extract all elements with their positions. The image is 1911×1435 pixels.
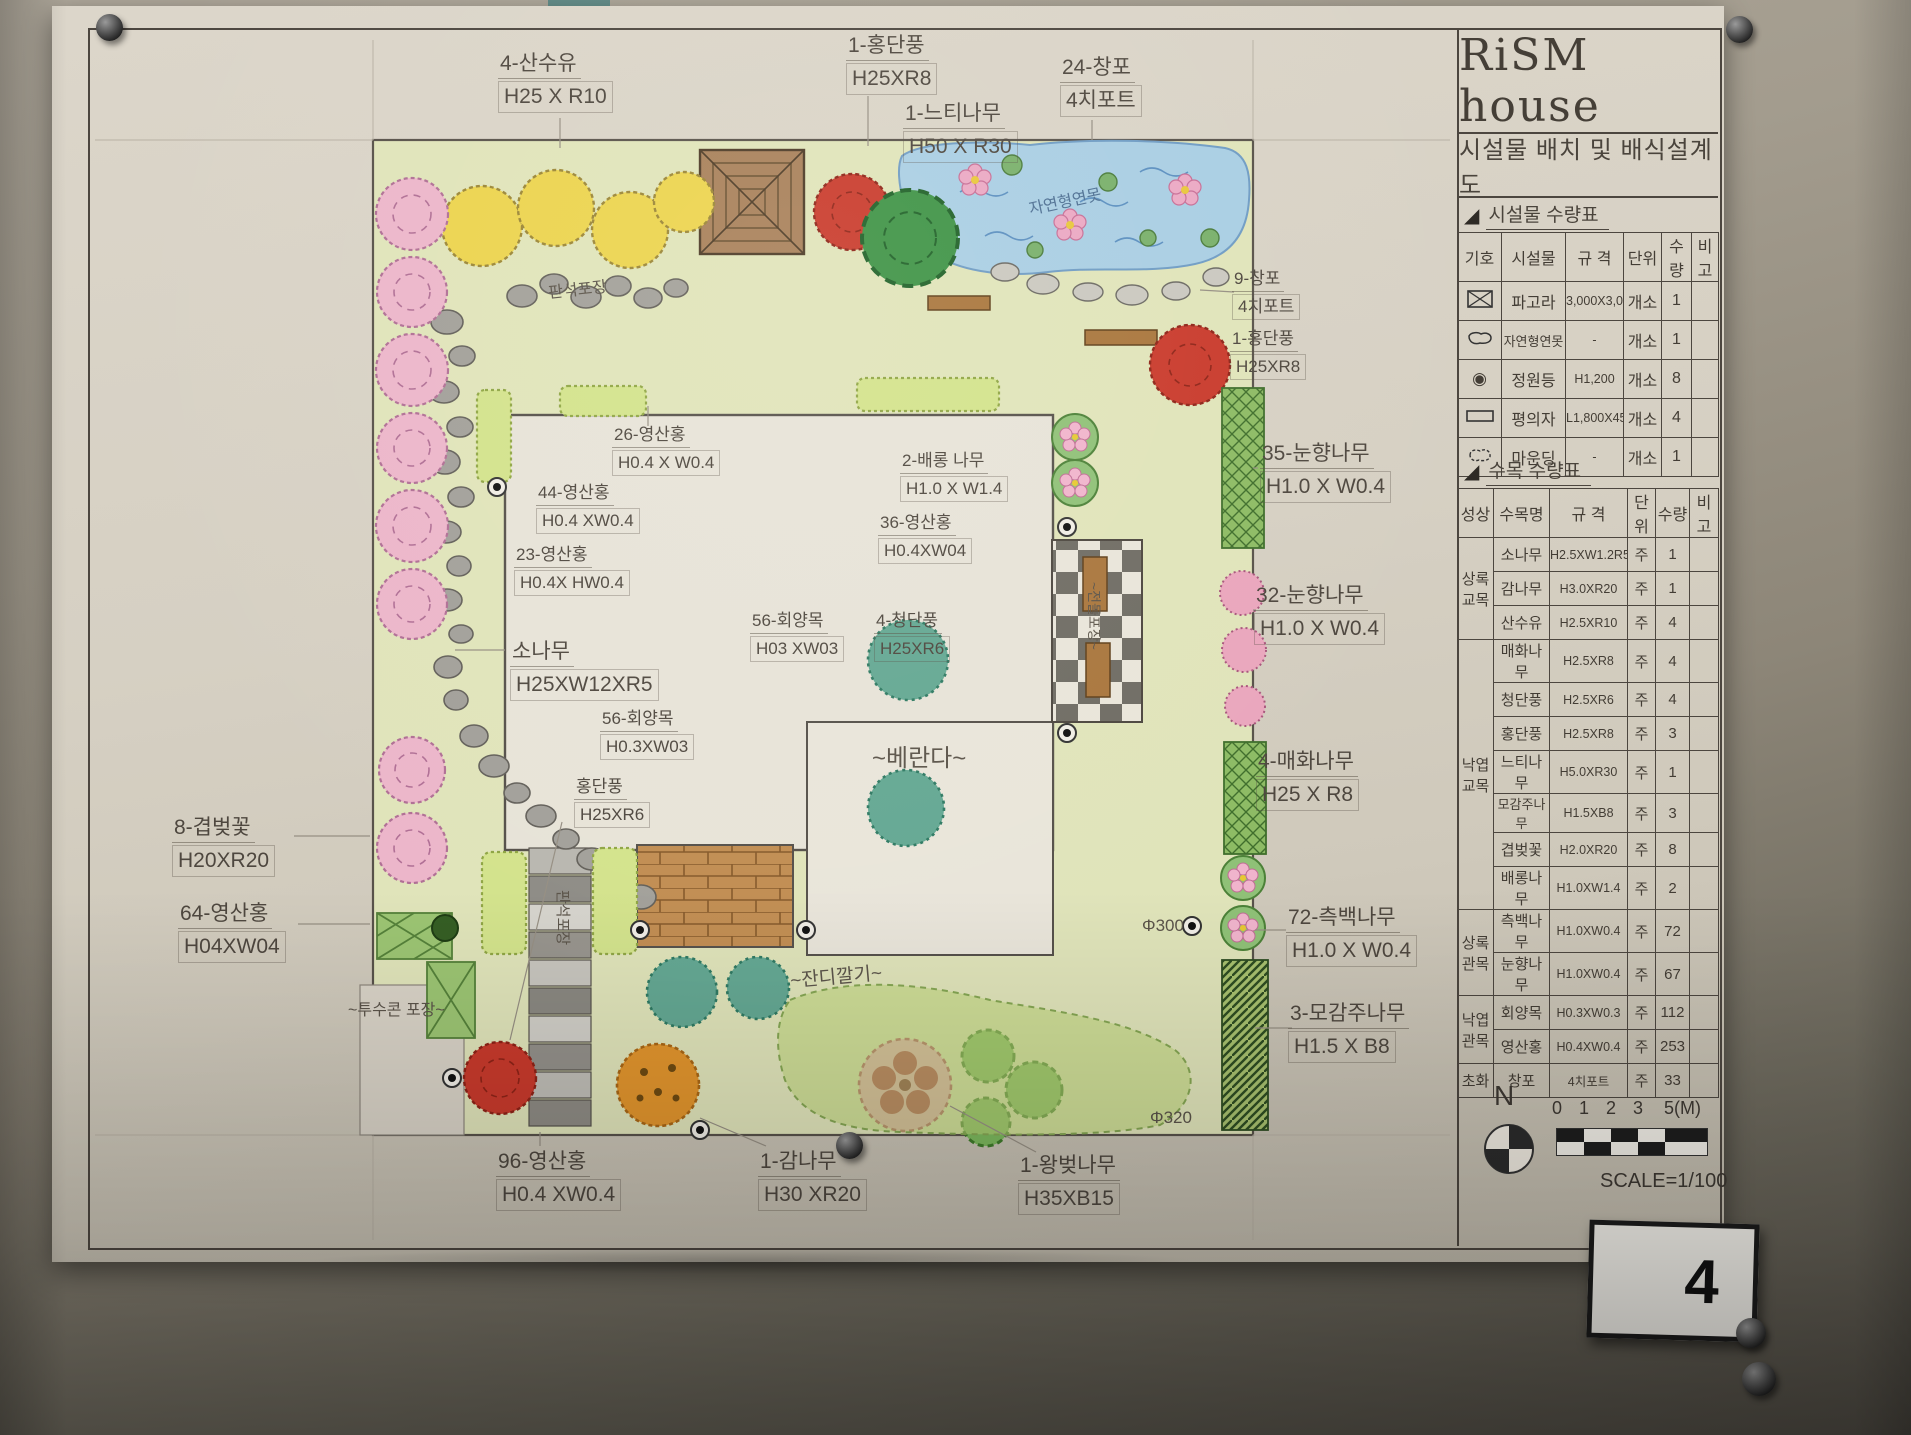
cell-spec: H2.5XR6 [1550,683,1628,717]
callout-spec: H1.0 X W1.4 [900,476,1008,502]
callout-red-maple-bottom: 홍단풍H25XR6 [574,776,650,828]
table-row: 눈향나무H1.0XW0.4주67 [1458,953,1719,996]
cell-name: 배롱나무 [1494,867,1550,910]
dia320-label: Φ320 [1150,1108,1192,1128]
cell-unit: 주 [1628,717,1656,751]
col-spec: 규 격 [1550,489,1628,538]
callout-spec: H0.3XW03 [600,734,694,760]
callout-thuja: 72-측백나무H1.0 X W0.4 [1286,904,1417,967]
table-row: 감나무H3.0XR20주1 [1458,572,1719,606]
callout-spec: H0.4 X W0.4 [612,450,720,476]
dia300-label: Φ300 [1142,916,1184,936]
callout-name: 8-겹벚꽃 [172,814,255,843]
callout-spec: H0.4 XW0.4 [536,508,640,534]
cell-unit: 개소 [1624,360,1662,399]
callout-name: 23-영산홍 [514,544,592,568]
pergola-symbol-icon [1458,282,1502,321]
cell-name: 자연형연못 [1502,321,1566,360]
callout-juniper-35: 35-눈향나무H1.0 X W0.4 [1260,440,1391,503]
cell-unit: 주 [1628,794,1656,833]
cell-name: 홍단풍 [1494,717,1550,751]
cell-note [1692,360,1719,399]
cell-note [1690,683,1719,717]
col-unit: 단위 [1628,489,1656,538]
table-row: 모감주나무H1.5XB8주3 [1458,794,1719,833]
callout-spec: H35XB15 [1018,1183,1120,1214]
callout-spec: H1.0 X W0.4 [1260,471,1391,502]
cell-spec: H0.3XW0.3 [1550,996,1628,1030]
callout-spec: H0.4X HW0.4 [514,570,630,596]
cell-spec: H2.5XR8 [1550,717,1628,751]
table-row: 평의자 L1,800X450 개소 4 [1458,399,1719,438]
cell-note [1692,282,1719,321]
cell-spec: H1.0XW1.4 [1550,867,1628,910]
cell-category: 낙엽 관목 [1458,996,1494,1064]
cell-category: 초화 [1458,1064,1494,1098]
col-name: 수목명 [1494,489,1550,538]
pinboard-photo: 4-산수유H25 X R10 1-홍단풍H25XR8 1-느티나무H50 X R… [0,0,1911,1435]
callout-goldenrain: 3-모감주나무H1.5 X B8 [1288,1000,1409,1063]
cell-qty: 8 [1656,833,1690,867]
callout-red-maple-right: 1-홍단풍H25XR8 [1230,328,1306,380]
col-spec: 규 격 [1566,233,1624,282]
callout-spec: H25XW12XR5 [510,669,659,700]
callout-juniper-32: 32-눈향나무H1.0 X W0.4 [1254,582,1385,645]
scale-bar [1556,1128,1708,1156]
callout-boxwood-56a: 56-회양목H03 XW03 [750,610,844,662]
section-marker-icon: ◢ [1464,459,1479,484]
cell-category: 낙엽 교목 [1458,640,1494,910]
cell-unit: 주 [1628,953,1656,996]
table-header-row: 성상 수목명 규 격 단위 수량 비고 [1458,489,1719,538]
cell-unit: 주 [1628,1064,1656,1098]
cell-note [1690,572,1719,606]
callout-name: 32-눈향나무 [1254,582,1368,611]
cell-name: 회양목 [1494,996,1550,1030]
callout-name: 36-영산홍 [878,512,956,536]
table-row: 산수유H2.5XR10주4 [1458,606,1719,640]
cell-qty: 1 [1656,751,1690,794]
table-row: 청단풍H2.5XR6주4 [1458,683,1719,717]
cell-unit: 주 [1628,910,1656,953]
cell-note [1690,751,1719,794]
cell-note [1690,640,1719,683]
callout-spec: H25XR8 [1230,354,1306,380]
north-compass-icon [1482,1122,1536,1176]
cell-name: 모감주나무 [1494,794,1550,833]
cell-qty: 4 [1656,606,1690,640]
callout-name: 4-산수유 [498,50,581,79]
table-row: 자연형연못 - 개소 1 [1458,321,1719,360]
cell-name: 눈향나무 [1494,953,1550,996]
callout-pine: 소나무H25XW12XR5 [510,638,659,701]
scale-tick: 3 [1633,1098,1643,1119]
callout-name: 24-창포 [1060,54,1135,83]
stone-path-label: 판석포장 [553,890,574,945]
cell-qty: 4 [1656,640,1690,683]
table-row: 느티나무H5.0XR30주1 [1458,751,1719,794]
section-title: 시설물 수량표 [1486,200,1608,230]
cell-name: 청단풍 [1494,683,1550,717]
callout-azalea-96: 96-영산홍H0.4 XW0.4 [496,1148,621,1211]
callout-zelkova: 1-느티나무H50 X R30 [903,100,1018,163]
table-row: 상록 관목측백나무H1.0XW0.4주72 [1458,910,1719,953]
cell-spec: H2.0XR20 [1550,833,1628,867]
callout-name: 1-홍단풍 [846,32,929,61]
cell-spec: H1.0XW0.4 [1550,910,1628,953]
callout-name: 96-영산홍 [496,1148,590,1177]
section-title: 수목 수량표 [1486,456,1591,486]
cell-note [1692,399,1719,438]
callout-spec: 4치포트 [1232,294,1300,320]
cell-qty: 2 [1656,867,1690,910]
cell-spec: H1.0XW0.4 [1550,953,1628,996]
cell-name: 평의자 [1502,399,1566,438]
cell-qty: 1 [1656,538,1690,572]
cell-note [1690,538,1719,572]
cell-spec: H1.5XB8 [1550,794,1628,833]
callout-spec: H0.4 XW0.4 [496,1179,621,1210]
cell-spec: H2.5XR10 [1550,606,1628,640]
callout-name: 9-창포 [1232,268,1284,292]
section-marker-icon: ◢ [1464,203,1479,228]
permeable-label: ~투수콘 포장~ [348,996,445,1020]
cell-qty: 253 [1656,1030,1690,1064]
cell-note [1690,910,1719,953]
callout-name: 1-홍단풍 [1230,328,1298,352]
cell-unit: 개소 [1624,321,1662,360]
callout-sansuyu: 4-산수유H25 X R10 [498,50,613,113]
table-row: 상록 교목소나무H2.5XW1.2R5주1 [1458,538,1719,572]
callout-plum: 4-매화나무H25 X R8 [1256,748,1359,811]
cell-qty: 1 [1662,321,1692,360]
cell-spec: H1,200 [1566,360,1624,399]
cell-unit: 개소 [1624,399,1662,438]
cell-name: 겹벚꽃 [1494,833,1550,867]
push-pin [96,14,123,41]
callout-spec: H25 X R8 [1256,779,1359,810]
veranda-label: ~베란다~ [872,738,966,773]
callout-name: 26-영산홍 [612,424,690,448]
callout-azalea-36: 36-영산홍H0.4XW04 [878,512,972,564]
cell-unit: 주 [1628,996,1656,1030]
tree-quantity-table: 성상 수목명 규 격 단위 수량 비고 상록 교목소나무H2.5XW1.2R5주… [1457,488,1719,1098]
push-pin [836,1132,863,1159]
bench-symbol-icon [1458,399,1502,438]
callout-spec: H25XR6 [874,636,950,662]
callout-spec: H25 X R10 [498,81,613,112]
scale-tick: 5(M) [1664,1098,1701,1119]
cell-qty: 1 [1656,572,1690,606]
cell-unit: 주 [1628,538,1656,572]
cell-note [1690,794,1719,833]
col-category: 성상 [1458,489,1494,538]
callout-iris-right: 9-창포4치포트 [1232,268,1300,320]
cell-name: 정원등 [1502,360,1566,399]
callout-name: 소나무 [510,638,574,667]
table-row: 낙엽 교목매화나무H2.5XR8주4 [1458,640,1719,683]
cell-note [1690,953,1719,996]
page-number-card: 4 [1586,1220,1759,1343]
callout-name: 1-감나무 [758,1148,841,1177]
callout-name: 72-측백나무 [1286,904,1400,933]
callout-name: 56-회양목 [750,610,828,634]
callout-boxwood-56b: 56-회양목H0.3XW03 [600,708,694,760]
callout-spec: H04XW04 [178,931,286,962]
facility-table-header: ◢ 시설물 수량표 [1464,200,1712,230]
facility-quantity-table: 기호 시설물 규 격 단위 수량 비고 파고라 3,000X3,000 개소 1… [1457,232,1719,477]
cell-unit: 주 [1628,572,1656,606]
callout-name: 3-모감주나무 [1288,1000,1409,1029]
cell-qty: 4 [1656,683,1690,717]
cell-qty: 8 [1662,360,1692,399]
sheet-subtitle: 시설물 배치 및 배식설계도 [1459,134,1718,198]
cell-qty: 4 [1662,399,1692,438]
cell-qty: 67 [1656,953,1690,996]
cell-unit: 주 [1628,1030,1656,1064]
cell-name: 소나무 [1494,538,1550,572]
scale-tick: 1 [1579,1098,1589,1119]
col-qty: 수량 [1662,233,1692,282]
callout-crape-myrtle: 2-배롱 나무H1.0 X W1.4 [900,450,1008,502]
callout-name: 35-눈향나무 [1260,440,1374,469]
cell-note [1692,321,1719,360]
cell-name: 측백나무 [1494,910,1550,953]
cell-name: 느티나무 [1494,751,1550,794]
table-row: 파고라 3,000X3,000 개소 1 [1458,282,1719,321]
callout-azalea-64: 64-영산홍H04XW04 [178,900,286,963]
callout-spec: H1.0 X W0.4 [1286,935,1417,966]
cell-unit: 주 [1628,606,1656,640]
cell-name: 영산홍 [1494,1030,1550,1064]
callout-name: 4-청단풍 [874,610,942,634]
cell-note [1690,833,1719,867]
cell-note [1690,1064,1719,1098]
col-note: 비고 [1690,489,1719,538]
pond-symbol-icon [1458,321,1502,360]
callout-name: 홍단풍 [574,776,627,800]
callout-azalea-23: 23-영산홍H0.4X HW0.4 [514,544,630,596]
table-row: 홍단풍H2.5XR8주3 [1458,717,1719,751]
push-pin [1726,16,1753,43]
cell-qty: 33 [1656,1064,1690,1098]
callout-spec: H30 XR20 [758,1179,867,1210]
table-row: 겹벚꽃H2.0XR20주8 [1458,833,1719,867]
callout-name: 1-느티나무 [903,100,1005,129]
cell-unit: 개소 [1624,282,1662,321]
cell-spec: - [1566,321,1624,360]
callout-name: 2-배롱 나무 [900,450,988,474]
col-note: 비고 [1692,233,1719,282]
scale-tick: 2 [1606,1098,1616,1119]
table-header-row: 기호 시설물 규 격 단위 수량 비고 [1458,233,1719,282]
cell-spec: H2.5XR8 [1550,640,1628,683]
callout-spec: H25XR6 [574,802,650,828]
col-symbol: 기호 [1458,233,1502,282]
callout-name: 56-회양목 [600,708,678,732]
push-pin [1736,1318,1766,1348]
callout-name: 64-영산홍 [178,900,272,929]
cell-unit: 주 [1628,867,1656,910]
callout-spec: H20XR20 [172,845,275,876]
col-name: 시설물 [1502,233,1566,282]
push-pin [1742,1362,1776,1396]
cell-note [1690,996,1719,1030]
callout-spec: 4치포트 [1060,85,1142,116]
cell-name: 매화나무 [1494,640,1550,683]
callout-name: 1-왕벚나무 [1018,1152,1120,1181]
callout-red-maple-top: 1-홍단풍H25XR8 [846,32,937,95]
cell-note [1690,1030,1719,1064]
callout-azalea-44: 44-영산홍H0.4 XW0.4 [536,482,640,534]
cell-spec: H3.0XR20 [1550,572,1628,606]
cell-spec: 4치포트 [1550,1064,1628,1098]
cell-qty: 3 [1656,717,1690,751]
callout-spec: H03 XW03 [750,636,844,662]
cell-spec: H0.4XW0.4 [1550,1030,1628,1064]
cell-spec: H5.0XR30 [1550,751,1628,794]
cell-qty: 3 [1656,794,1690,833]
callout-double-cherry: 8-겹벚꽃H20XR20 [172,814,275,877]
cell-qty: 72 [1656,910,1690,953]
cell-unit: 주 [1628,833,1656,867]
cell-name: 산수유 [1494,606,1550,640]
table-row: 영산홍H0.4XW0.4주253 [1458,1030,1719,1064]
checker-path-label: ~전돌포장~ [1084,582,1104,650]
callout-name: 4-매화나무 [1256,748,1358,777]
callout-spec: H1.5 X B8 [1288,1031,1396,1062]
callout-green-maple: 4-청단풍H25XR6 [874,610,950,662]
sheet-title: RiSM house [1459,30,1718,134]
cell-qty: 1 [1662,282,1692,321]
callout-spec: H1.0 X W0.4 [1254,613,1385,644]
cell-unit: 주 [1628,683,1656,717]
garden-light-symbol-icon: ◉ [1458,360,1502,399]
cell-unit: 주 [1628,751,1656,794]
callout-name: 44-영산홍 [536,482,614,506]
table-row: ◉ 정원등 H1,200 개소 8 [1458,360,1719,399]
table-row: 낙엽 관목회양목H0.3XW0.3주112 [1458,996,1719,1030]
cell-spec: L1,800X450 [1566,399,1624,438]
cell-qty: 112 [1656,996,1690,1030]
callout-azalea-26: 26-영산홍H0.4 X W0.4 [612,424,720,476]
cell-name: 감나무 [1494,572,1550,606]
callout-spec: H0.4XW04 [878,538,972,564]
cell-note [1690,867,1719,910]
callout-king-cherry: 1-왕벚나무H35XB15 [1018,1152,1120,1215]
callout-spec: H50 X R30 [903,131,1018,162]
col-qty: 수량 [1656,489,1690,538]
cell-category: 상록 교목 [1458,538,1494,640]
cell-note [1690,717,1719,751]
page-number: 4 [1684,1246,1720,1318]
scale-tick: 0 [1552,1098,1562,1119]
cell-name: 파고라 [1502,282,1566,321]
cell-category: 상록 관목 [1458,910,1494,996]
cell-spec: 3,000X3,000 [1566,282,1624,321]
callout-spec: H25XR8 [846,63,937,94]
north-label: N [1494,1080,1514,1112]
scale-text: SCALE=1/100 [1600,1170,1727,1193]
table-row: 배롱나무H1.0XW1.4주2 [1458,867,1719,910]
cell-spec: H2.5XW1.2R5 [1550,538,1628,572]
cell-unit: 주 [1628,640,1656,683]
tree-table-header: ◢ 수목 수량표 [1464,456,1712,486]
callout-iris-top: 24-창포4치포트 [1060,54,1142,117]
cell-note [1690,606,1719,640]
col-unit: 단위 [1624,233,1662,282]
